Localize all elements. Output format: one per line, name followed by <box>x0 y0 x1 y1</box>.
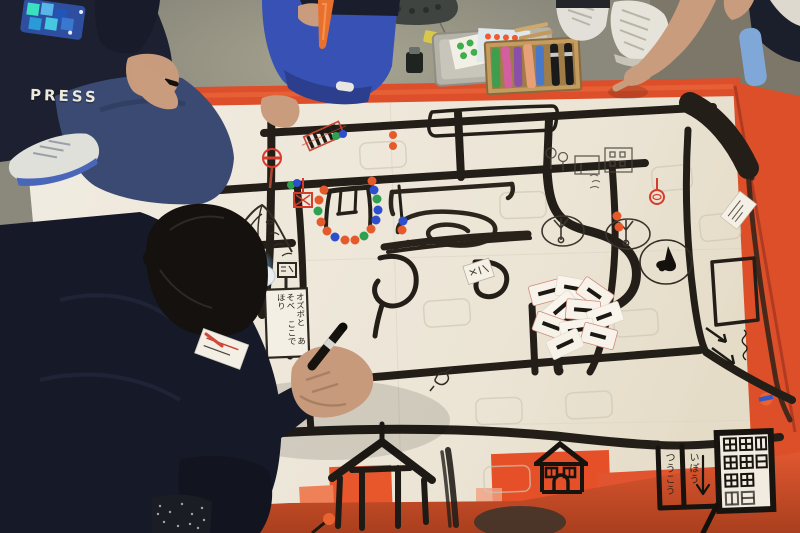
photo-children-drawing-robot-map: PRESS オズボと あそべ ここで ほり つうこう いぽう <box>0 0 800 533</box>
ozobot-play-sign <box>265 288 309 357</box>
scene <box>0 0 800 533</box>
apartment-building-drawing <box>717 431 774 511</box>
speckled-leggings <box>152 495 212 533</box>
marker-box <box>485 38 582 95</box>
hair-tie <box>143 249 161 267</box>
